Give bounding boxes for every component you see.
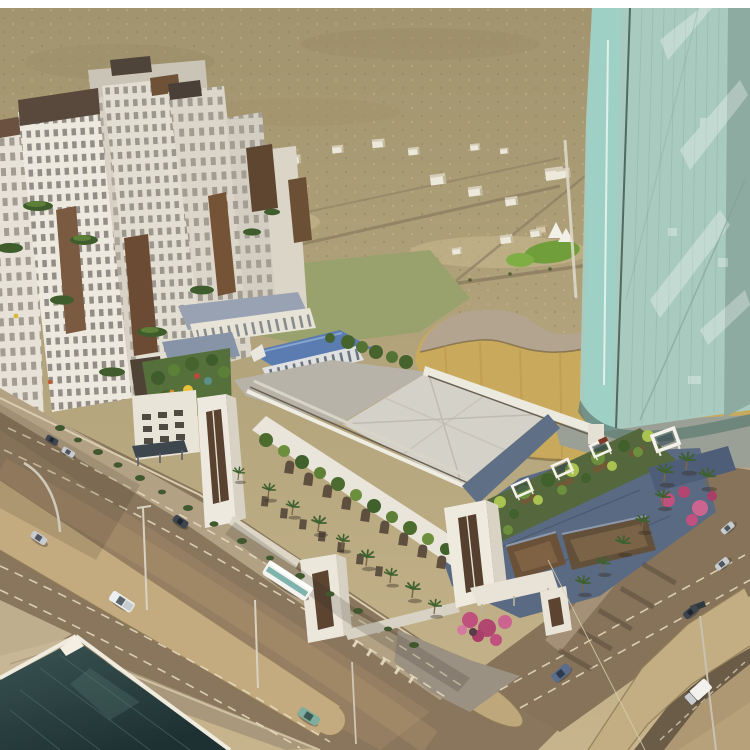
rendering-canvas: Aerial rendering of a desert-city mixed-… [0,0,750,750]
garden-umbrella-red [194,373,200,379]
glass-skyscraper [578,8,750,442]
aerial-rendering: Aerial rendering of a desert-city mixed-… [0,0,750,750]
garden-umbrella-teal [204,377,212,385]
green-lawn [506,253,534,267]
glass-right-edge [724,8,750,418]
